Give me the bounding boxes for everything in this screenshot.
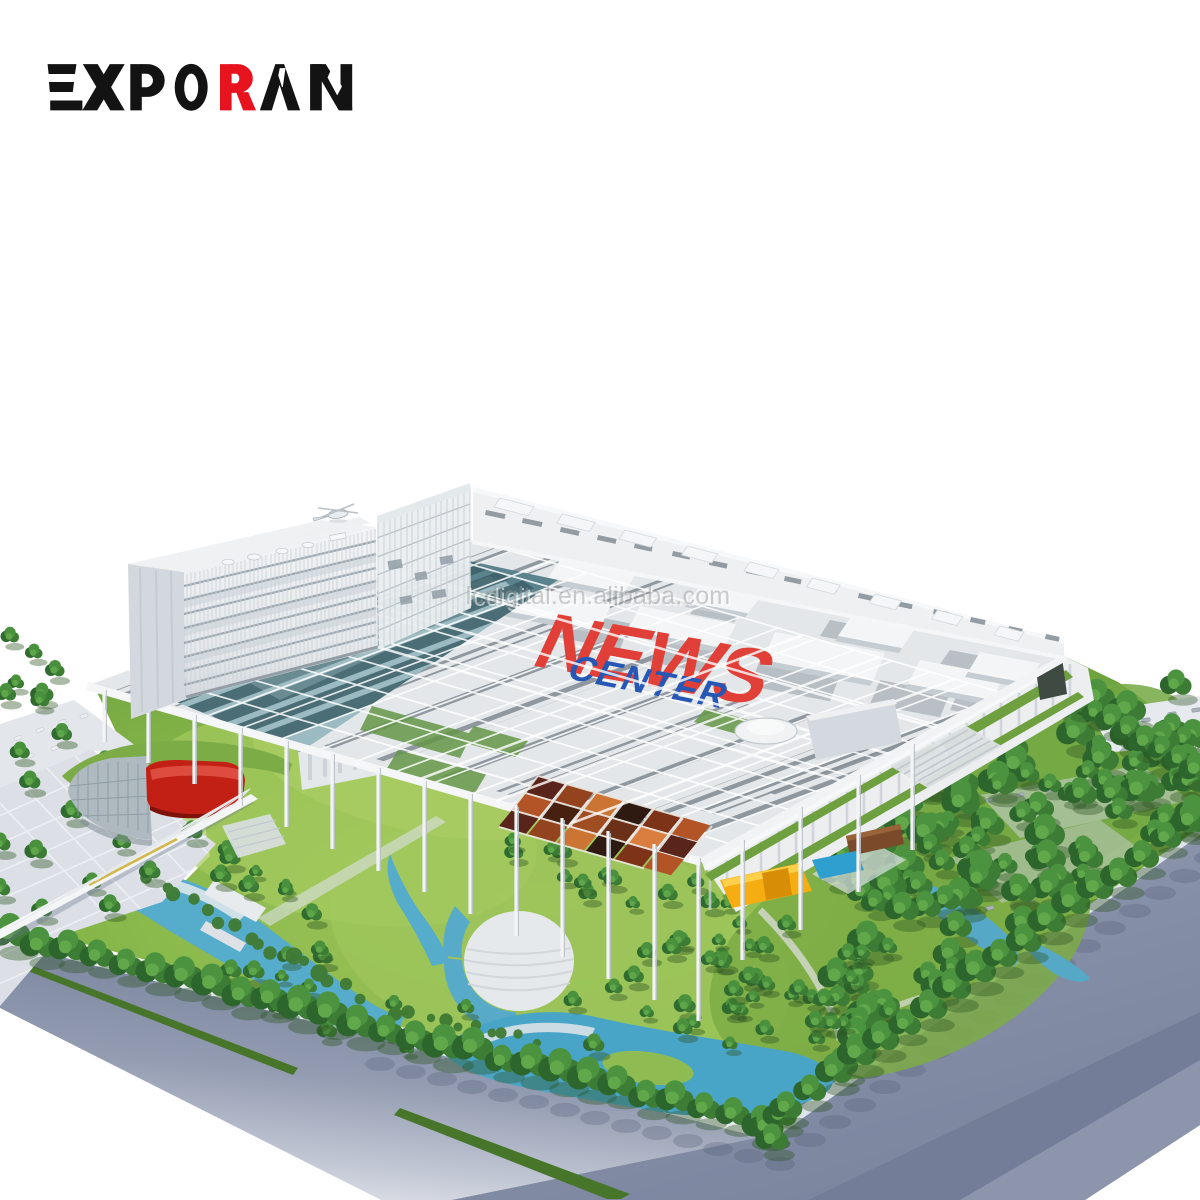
- svg-text:lcdigital.en.alibaba.com: lcdigital.en.alibaba.com: [466, 582, 731, 610]
